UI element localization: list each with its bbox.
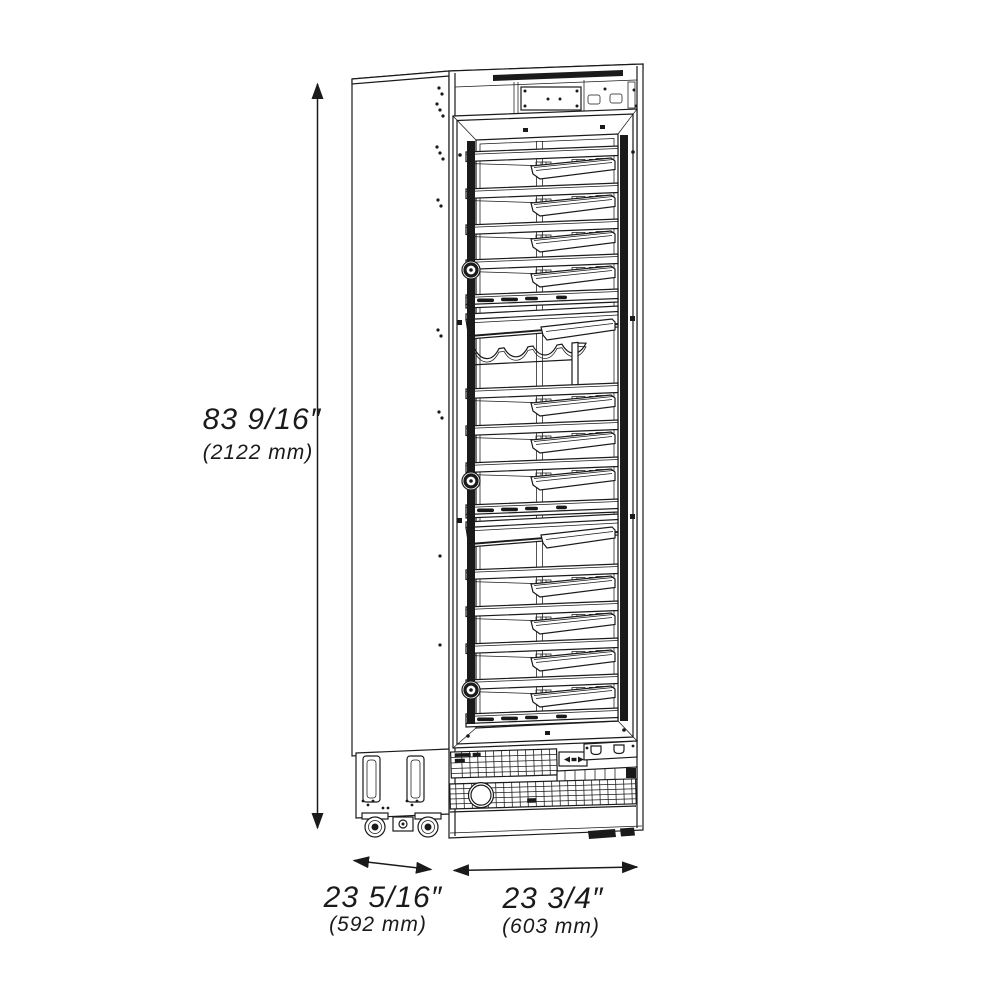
depth-arrow bbox=[354, 861, 431, 870]
caster-bracket-box bbox=[393, 817, 413, 831]
glass-edge-right bbox=[620, 135, 628, 721]
caster-wheel-left bbox=[362, 813, 388, 837]
dimension-diagram-canvas: 83 9/16″ (2122 mm) 23 5/16″ (592 mm) 23 … bbox=[0, 0, 1000, 1000]
wine-cooler-dimension-drawing: 83 9/16″ (2122 mm) 23 5/16″ (592 mm) 23 … bbox=[0, 0, 1000, 1000]
width-dimension-label: 23 3/4″ bbox=[501, 882, 603, 915]
width-arrow bbox=[454, 867, 637, 871]
height-dimension-label: 83 9/16″ bbox=[203, 403, 322, 436]
depth-dimension: 23 5/16″ (592 mm) bbox=[323, 861, 443, 937]
glass-edge-left bbox=[467, 141, 475, 724]
height-dimension-metric: (2122 mm) bbox=[203, 441, 314, 464]
depth-dimension-metric: (592 mm) bbox=[329, 913, 427, 936]
cabinet-drawing bbox=[352, 64, 643, 839]
fan-circle bbox=[468, 782, 494, 808]
front-foot-right bbox=[620, 828, 635, 837]
depth-dimension-label: 23 5/16″ bbox=[323, 881, 443, 914]
height-dimension: 83 9/16″ (2122 mm) bbox=[203, 84, 322, 828]
condenser-grille bbox=[450, 778, 637, 809]
rear-base-compartment bbox=[356, 749, 449, 837]
cabinet-side-panel bbox=[352, 71, 449, 756]
hinge-plate bbox=[521, 87, 581, 110]
width-dimension: 23 3/4″ (603 mm) bbox=[454, 867, 637, 938]
width-dimension-metric: (603 mm) bbox=[502, 915, 600, 938]
upper-vent-grille bbox=[451, 749, 558, 778]
caster-wheel-right bbox=[415, 813, 441, 837]
bottom-hinge-bracket bbox=[584, 741, 637, 760]
leveling-switch-box bbox=[559, 752, 587, 766]
